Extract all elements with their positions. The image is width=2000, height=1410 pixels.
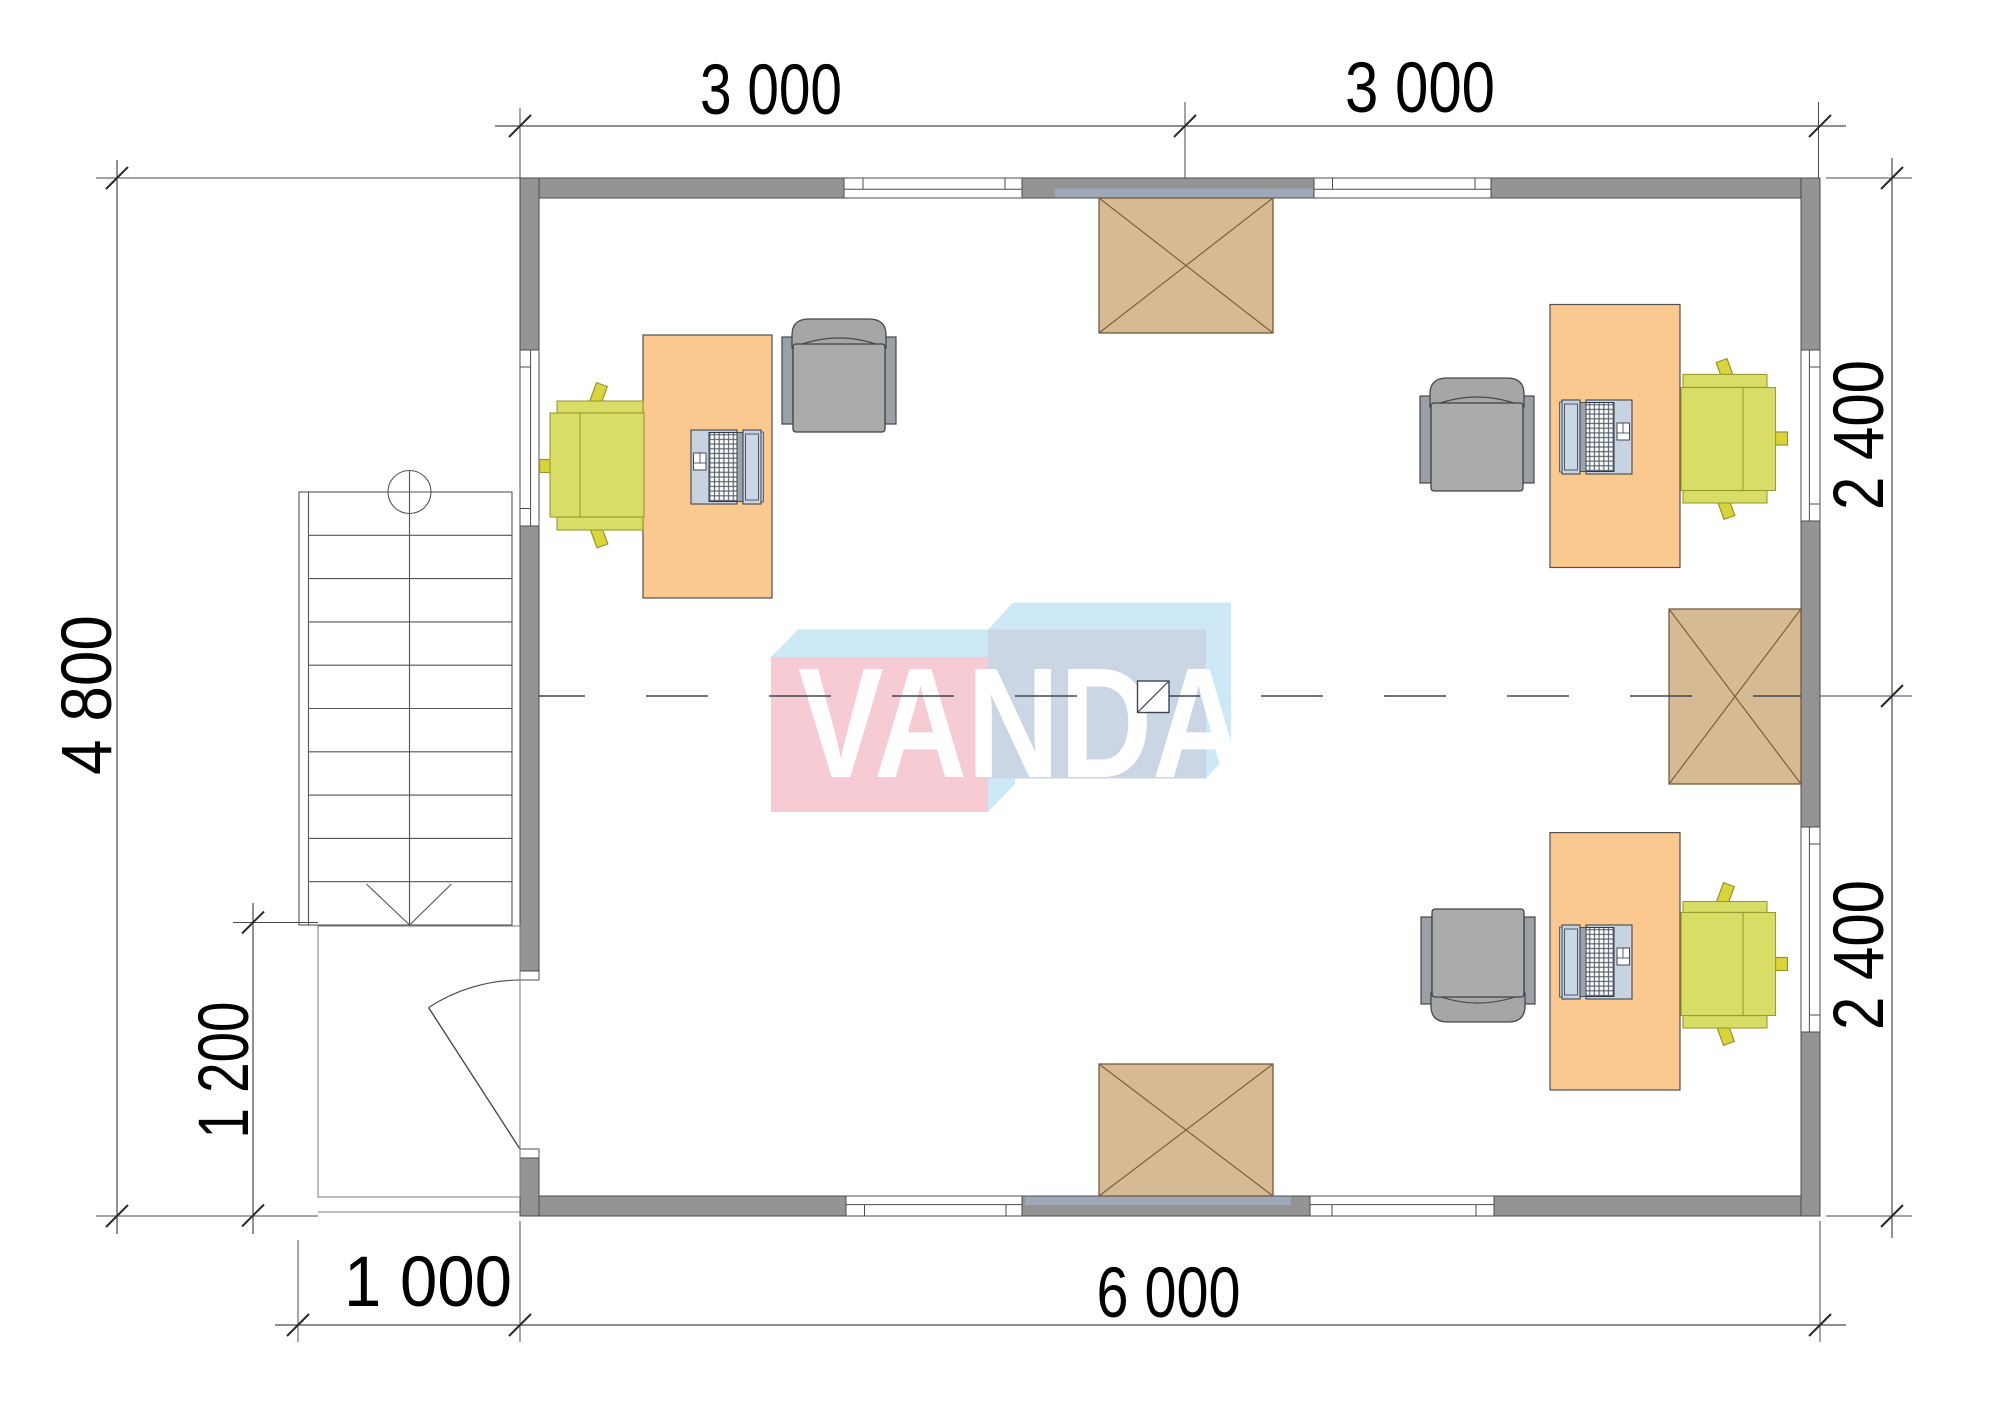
svg-text:6 000: 6 000 bbox=[1097, 1254, 1241, 1333]
svg-text:VANDA: VANDA bbox=[798, 636, 1245, 811]
svg-text:2 400: 2 400 bbox=[1820, 360, 1899, 510]
svg-text:3 000: 3 000 bbox=[1345, 49, 1495, 128]
svg-text:2 400: 2 400 bbox=[1820, 880, 1899, 1030]
svg-text:1 000: 1 000 bbox=[344, 1243, 512, 1322]
svg-text:4 800: 4 800 bbox=[48, 615, 127, 775]
svg-text:3 000: 3 000 bbox=[700, 51, 842, 130]
svg-text:1 200: 1 200 bbox=[185, 1002, 264, 1139]
